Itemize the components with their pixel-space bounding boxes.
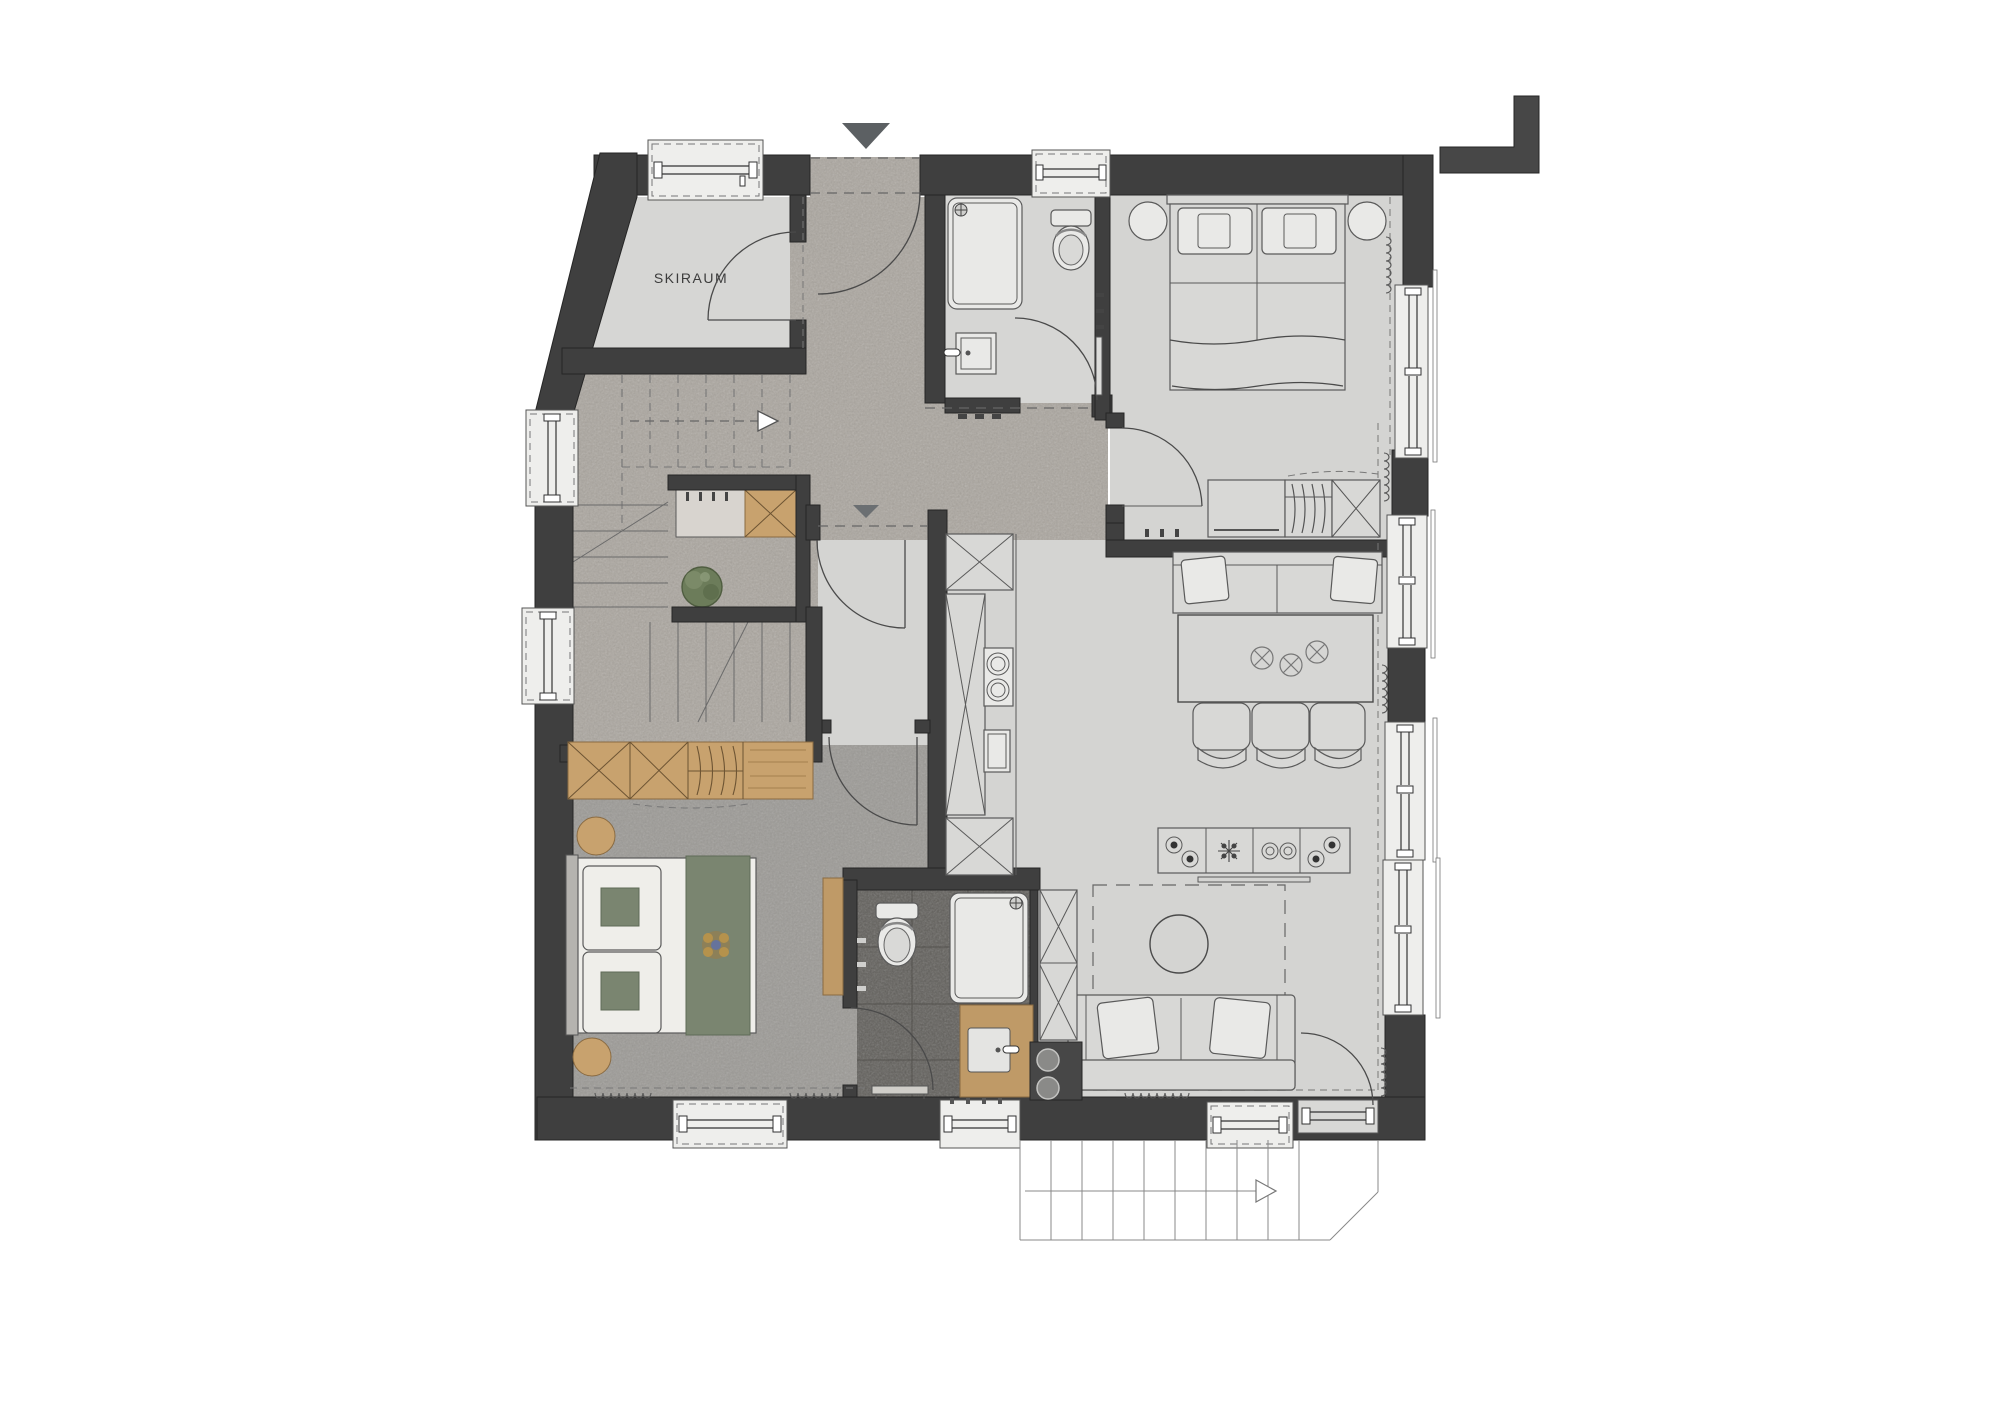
pillow-accent xyxy=(601,972,639,1010)
vanity-bottom xyxy=(960,1005,1033,1097)
chair xyxy=(1252,703,1309,768)
wardrobe-bottom-bedroom xyxy=(568,742,813,808)
window-right-kitchen xyxy=(1385,718,1437,862)
window-left-lower xyxy=(522,608,574,704)
wardrobe-top-bedroom xyxy=(1285,471,1380,537)
runner-emblem-icon xyxy=(702,931,730,959)
nightstand xyxy=(1348,202,1386,240)
neighbor-wall-fragment xyxy=(1440,96,1539,173)
cabinet-x xyxy=(946,818,1013,875)
dining-area xyxy=(1173,552,1382,768)
entrance-triangle-icon xyxy=(842,123,890,149)
side-table-round xyxy=(577,817,615,855)
window-left-upper xyxy=(526,410,578,506)
window-bottom-bedroom xyxy=(673,1100,787,1148)
window-top-skiraum xyxy=(648,140,763,200)
cabinet-x xyxy=(946,534,1013,590)
pillow xyxy=(1097,997,1159,1059)
floor-plan-page: SKIRAUM xyxy=(0,0,2000,1414)
nightstand xyxy=(1129,202,1167,240)
chair xyxy=(1193,703,1250,768)
utility-cabinet xyxy=(1040,890,1077,1040)
dining-bench xyxy=(1173,552,1382,613)
shower-head-icon xyxy=(955,204,967,216)
chair xyxy=(1310,703,1365,768)
tall-cabinet-x xyxy=(946,594,985,815)
bed-headboard-top xyxy=(1167,195,1348,204)
shower-top xyxy=(948,198,1022,309)
hall-hooks-icon xyxy=(958,414,1001,419)
pillow xyxy=(1330,556,1378,604)
pillow xyxy=(1181,556,1229,604)
utility-niche xyxy=(1030,1042,1082,1100)
plant-icon xyxy=(682,567,722,607)
window-right-living xyxy=(1383,858,1440,1018)
pillow xyxy=(1262,208,1336,254)
dining-chairs xyxy=(1193,703,1365,768)
terrace-stairs xyxy=(1020,1140,1378,1240)
toilet-top xyxy=(1051,210,1091,270)
shower-head-icon xyxy=(1010,897,1022,909)
bed-double-bottom xyxy=(566,855,756,1035)
pillow xyxy=(1178,208,1252,254)
shower-bottom xyxy=(950,893,1028,1003)
kitchen-sink xyxy=(984,730,1010,772)
floor-plan-drawing: SKIRAUM xyxy=(0,0,2000,1414)
sliding-wood-door xyxy=(823,878,843,995)
pillow xyxy=(1209,997,1271,1059)
side-table-round xyxy=(573,1038,611,1076)
towel-radiator-top xyxy=(1096,337,1102,395)
terrace-stairs-arrow-icon xyxy=(1025,1180,1276,1202)
toilet-bottom xyxy=(876,903,918,966)
window-bottom-living xyxy=(1207,1102,1293,1148)
pillow-accent xyxy=(601,888,639,926)
core-cabinet xyxy=(745,490,796,537)
window-right-bedroom xyxy=(1395,270,1437,462)
window-top-bathroom xyxy=(1032,150,1110,197)
island-plant-decor-icon xyxy=(1218,840,1240,862)
skiraum-label: SKIRAUM xyxy=(654,270,728,286)
bed-double-top xyxy=(1170,204,1345,390)
window-bottom-bathroom xyxy=(940,1098,1020,1148)
cooktop xyxy=(984,648,1013,706)
dining-table xyxy=(1178,615,1373,702)
sideboard-top-bedroom xyxy=(1208,480,1285,537)
kitchen-cabinets xyxy=(946,534,1016,875)
sofa xyxy=(1068,995,1295,1090)
window-right-dining xyxy=(1387,510,1435,658)
